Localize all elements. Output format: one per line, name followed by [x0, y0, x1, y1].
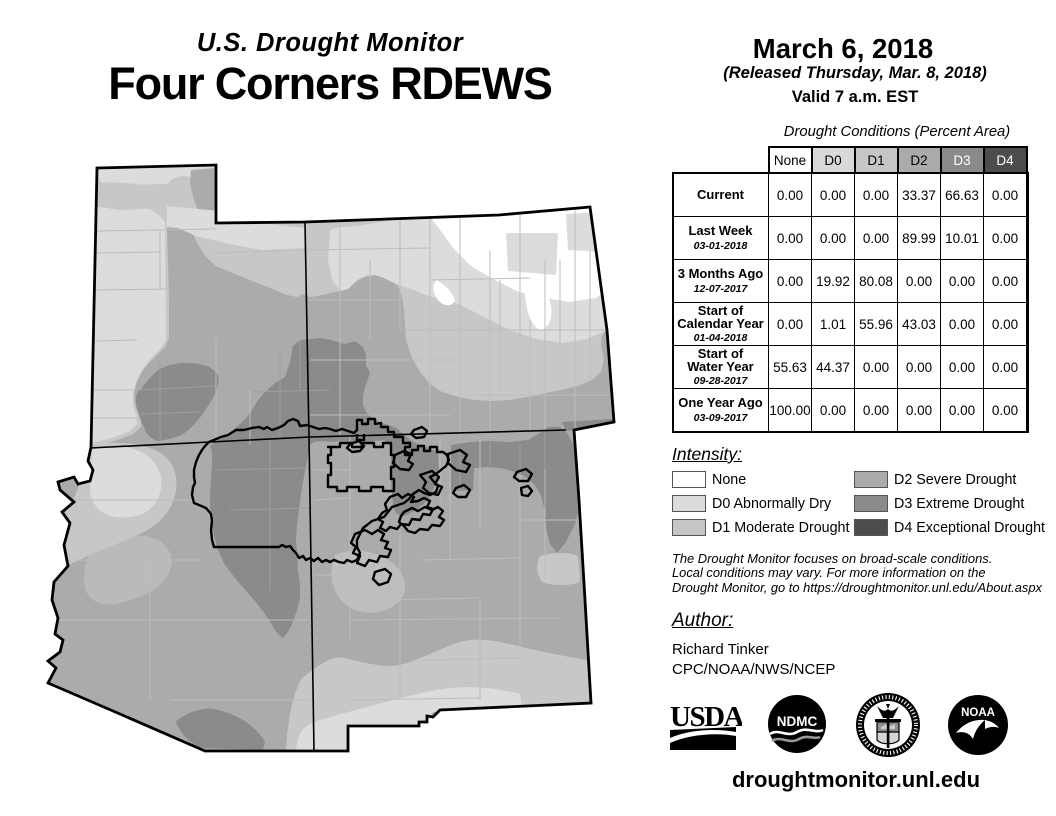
svg-text:NOAA: NOAA [961, 707, 995, 719]
svg-text:NDMC: NDMC [777, 714, 818, 729]
